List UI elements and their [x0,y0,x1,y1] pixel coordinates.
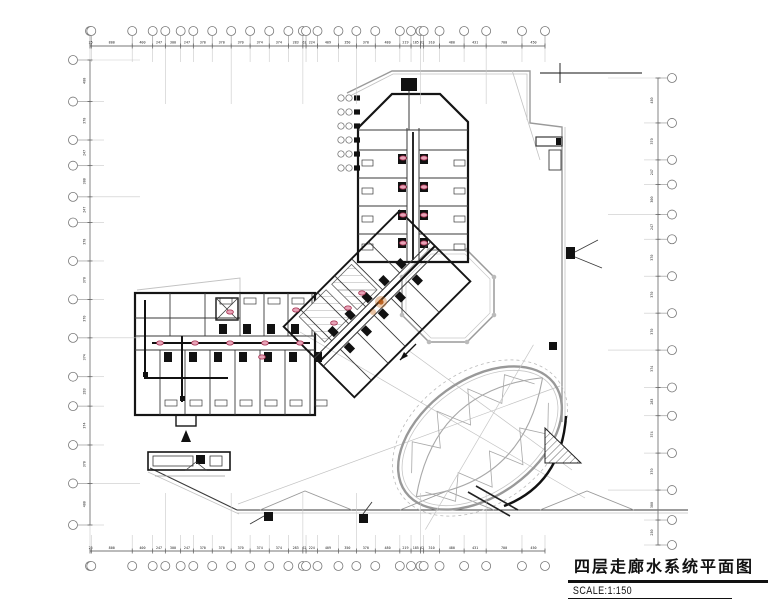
svg-text:350: 350 [344,546,350,550]
svg-text:219: 219 [402,546,408,550]
column-grid-bubble [334,562,343,571]
column-grid-bubble [189,27,198,36]
svg-text:374: 374 [257,546,263,550]
svg-text:374: 374 [276,546,282,550]
column-grid-bubble [161,27,170,36]
svg-text:247: 247 [83,207,87,213]
column-grid-bubble [668,272,677,281]
pipe-riser-marker [293,308,300,312]
svg-text:370: 370 [363,41,369,45]
svg-text:310: 310 [429,546,435,550]
column-grid-bubble [227,27,236,36]
pipe-riser-marker [400,156,407,160]
column-grid-bubble [69,295,78,304]
svg-text:283: 283 [83,388,87,394]
svg-text:283: 283 [650,399,654,405]
svg-text:25: 25 [89,546,93,550]
column-grid-bubble [189,562,198,571]
drawing-scale: SCALE:1:150 [568,583,732,599]
svg-text:350: 350 [344,41,350,45]
svg-text:370: 370 [650,255,654,261]
svg-text:283: 283 [293,546,299,550]
column-grid-bubble [69,402,78,411]
svg-text:224: 224 [309,41,315,45]
column-grid-bubble [69,97,78,106]
svg-text:224: 224 [309,546,315,550]
guestroom-wing-west [135,278,327,442]
svg-text:185: 185 [413,546,419,550]
column-grid-bubble [69,372,78,381]
pipe-riser-marker [400,241,407,245]
pipe-riser-marker [227,310,234,314]
detail-flag-symbols [250,137,602,524]
svg-text:370: 370 [363,546,369,550]
floor-plan-canvas: 2580040024730024737037037037437428362224… [0,0,773,600]
column-grid-bubble [176,27,185,36]
column-grid-bubble [435,27,444,36]
svg-text:247: 247 [83,150,87,156]
svg-text:370: 370 [219,41,225,45]
svg-text:700: 700 [501,41,507,45]
svg-text:250: 250 [650,529,654,535]
svg-text:370: 370 [238,41,244,45]
column-grid-bubble [668,541,677,550]
column-grid-bubble [668,210,677,219]
svg-text:374: 374 [83,422,87,428]
pipe-riser-marker [262,341,269,345]
column-grid-bubble [265,562,274,571]
column-grid-bubble [517,27,526,36]
pipe-riser-marker [157,341,164,345]
column-grid-bubble [208,562,217,571]
svg-text:370: 370 [650,138,654,144]
svg-text:374: 374 [257,41,263,45]
column-grid-bubble [541,562,550,571]
svg-text:431: 431 [472,41,478,45]
svg-text:409: 409 [325,41,331,45]
svg-text:400: 400 [83,501,87,507]
pipe-riser-marker [400,185,407,189]
svg-text:374: 374 [276,41,282,45]
column-grid-bubble [668,346,677,355]
svg-text:300: 300 [83,178,87,184]
svg-text:62: 62 [420,41,424,45]
pipe-riser-marker [421,241,428,245]
column-grid-bubble [668,74,677,83]
svg-text:300: 300 [170,546,176,550]
svg-text:370: 370 [650,469,654,475]
svg-text:450: 450 [530,41,536,45]
svg-text:400: 400 [139,546,145,550]
cad-viewport: 2580040024730024737037037037437428362224… [0,0,773,600]
column-grid-bubble [668,516,677,525]
column-grid-bubble [69,256,78,265]
column-grid-bubble [284,27,293,36]
svg-text:62: 62 [302,546,306,550]
svg-text:370: 370 [650,329,654,335]
column-grid-bubble [395,562,404,571]
column-grid-bubble [371,27,380,36]
column-grid-bubble [176,562,185,571]
pipe-riser-marker [400,213,407,217]
pipe-riser-marker [192,341,199,345]
column-grid-bubble [69,161,78,170]
svg-text:450: 450 [530,546,536,550]
svg-text:409: 409 [325,546,331,550]
svg-text:800: 800 [109,41,115,45]
column-grid-bubble [668,486,677,495]
column-grid-bubble [246,27,255,36]
column-grid-bubble [148,27,157,36]
svg-text:374: 374 [83,354,87,360]
svg-text:480: 480 [449,41,455,45]
site-boundary [238,70,585,504]
svg-text:247: 247 [156,41,162,45]
svg-text:374: 374 [650,366,654,372]
column-grid-bubble [284,562,293,571]
svg-text:300: 300 [170,41,176,45]
pipe-riser-marker [227,341,234,345]
svg-text:62: 62 [302,41,306,45]
column-grid-bubble [541,27,550,36]
svg-text:374: 374 [650,431,654,437]
column-grid-bubble [128,27,137,36]
column-grid-bubble [668,118,677,127]
column-grid-bubble [482,562,491,571]
column-grid-bubble [668,235,677,244]
svg-text:300: 300 [650,197,654,203]
svg-text:62: 62 [420,546,424,550]
svg-text:370: 370 [83,461,87,467]
column-grid-bubble [161,562,170,571]
column-grid-bubble [517,562,526,571]
column-grid-bubble [208,27,217,36]
column-grid-bubble [668,309,677,318]
pipe-riser-marker [359,291,366,295]
svg-text:283: 283 [293,41,299,45]
svg-text:700: 700 [501,546,507,550]
svg-text:247: 247 [650,169,654,175]
column-grid-bubble [460,562,469,571]
svg-text:431: 431 [472,546,478,550]
column-grid-bubble [482,27,491,36]
svg-text:480: 480 [384,41,390,45]
column-grid-bubble [668,155,677,164]
column-grid-bubble [407,562,416,571]
column-grid-bubble [668,383,677,392]
column-grid-bubble [407,27,416,36]
svg-text:400: 400 [139,41,145,45]
svg-text:450: 450 [650,97,654,103]
pipe-riser-marker [297,341,304,345]
column-grid-bubble [87,27,96,36]
guestroom-wing-north [338,78,468,262]
svg-text:370: 370 [200,546,206,550]
column-grid-bubble [87,562,96,571]
svg-text:25: 25 [89,41,93,45]
svg-text:370: 370 [200,41,206,45]
column-grid-bubble [371,562,380,571]
column-grid-bubble [419,27,428,36]
svg-text:370: 370 [83,277,87,283]
column-grid-bubble [395,27,404,36]
north-arrow [400,344,416,360]
svg-text:247: 247 [184,41,190,45]
column-grid-bubble [227,562,236,571]
pipe-riser-marker [345,306,352,310]
svg-text:480: 480 [449,546,455,550]
svg-text:247: 247 [156,546,162,550]
svg-text:370: 370 [83,118,87,124]
keyed-note-bubbles [338,95,360,171]
fence-line [148,452,688,514]
column-grid-top: 2580040024730024737037037037437428362224… [86,27,550,105]
column-grid-bubble [69,192,78,201]
svg-text:370: 370 [83,316,87,322]
svg-text:480: 480 [384,546,390,550]
svg-text:300: 300 [650,502,654,508]
svg-text:310: 310 [429,41,435,45]
column-grid-bubble [419,562,428,571]
column-grid-bubble [668,449,677,458]
svg-text:247: 247 [184,546,190,550]
column-grid-bubble [69,136,78,145]
drawing-title: 四层走廊水系统平面图 [568,551,768,583]
svg-text:400: 400 [83,78,87,84]
svg-text:370: 370 [219,546,225,550]
pipe-riser-marker [421,185,428,189]
column-grid-right: 4503702473002473703703703742833743703002… [608,74,677,550]
column-grid-bubble [334,27,343,36]
leader-line-top-right [540,63,642,83]
column-grid-bubble [668,180,677,189]
pipe-riser-marker [421,213,428,217]
column-grid-bubble [69,440,78,449]
svg-text:185: 185 [413,41,419,45]
column-grid-bubble [352,27,361,36]
svg-text:370: 370 [238,546,244,550]
svg-text:370: 370 [650,292,654,298]
pipe-riser-marker [259,355,266,359]
column-grid-bubble [435,562,444,571]
svg-text:800: 800 [109,546,115,550]
column-grid-bubble [246,562,255,571]
pipe-riser-marker [421,156,428,160]
pipe-riser-marker [331,321,338,325]
svg-text:370: 370 [83,239,87,245]
column-grid-bubble [128,562,137,571]
column-grid-bubble [668,411,677,420]
column-grid-bubble [460,27,469,36]
svg-text:219: 219 [402,41,408,45]
column-grid-bubble [148,562,157,571]
column-grid-left: 400370247300247370370370374283374370400 [69,56,141,530]
column-grid-bubble [69,333,78,342]
column-grid-bubble [69,56,78,65]
column-grid-bubble [313,562,322,571]
column-grid-bubble [302,27,311,36]
column-grid-bubble [69,218,78,227]
column-grid-bubble [313,27,322,36]
column-grid-bubble [352,562,361,571]
column-grid-bubble [302,562,311,571]
title-block: 四层走廊水系统平面图 SCALE:1:150 [568,551,768,599]
svg-text:247: 247 [650,224,654,230]
column-grid-bubble [265,27,274,36]
column-grid-bubble [69,521,78,530]
column-grid-bubble [69,479,78,488]
